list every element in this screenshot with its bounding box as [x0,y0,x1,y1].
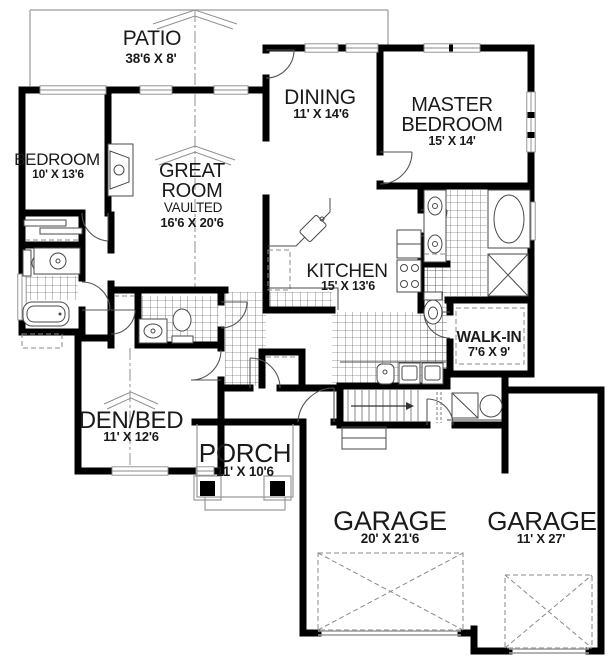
optional-stoop [22,334,62,348]
label-bedroom-dims: 10' X 13'6 [32,167,84,181]
label-patio: PATIO [123,27,181,50]
label-master-bedroom-2: BEDROOM [401,114,502,136]
label-great-room-note: VAULTED [164,200,223,215]
front-door [298,388,334,422]
patio-door [266,50,294,78]
window [214,86,248,94]
garage-doors [318,553,592,653]
den-door [191,350,221,380]
label-dining-dims: 11' X 14'6 [293,106,349,121]
bath-door [82,282,110,310]
fireplace [108,144,133,196]
window [527,92,535,152]
label-great-room-1: GREAT [159,160,225,182]
window [140,86,172,94]
label-walk-in-dims: 7'6 X 9' [468,344,510,359]
bedroom-door [82,213,108,241]
label-great-room-2: ROOM [161,180,222,202]
window [424,44,480,52]
label-master-bedroom-1: MASTER [411,94,493,116]
window [40,86,106,94]
label-patio-dims: 38'6 X 8' [125,51,176,66]
label-great-room-dims: 16'6 X 20'6 [160,215,223,230]
closet-door [111,310,135,334]
label-kitchen-dims: 15' X 13'6 [321,279,375,293]
window [305,44,338,52]
floor-plan-canvas: PATIO 38'6 X 8' DINING 11' X 14'6 MASTER… [0,0,614,664]
stairs [342,390,418,449]
bedroom-closet [24,220,82,240]
floor-plan-drawing: PATIO 38'6 X 8' DINING 11' X 14'6 MASTER… [0,0,614,664]
label-porch-dims: 11' X 10'6 [216,464,274,479]
label-master-bedroom-dims: 15' X 14' [428,134,475,148]
label-garage-side-dims: 11' X 27' [517,531,566,546]
label-den-bed-dims: 11' X 12'6 [103,429,159,444]
master-bedroom-door [380,152,412,184]
window [196,467,214,475]
window [112,467,168,475]
roof-ridge-lines [104,10,237,466]
garage-entry-door [427,399,453,425]
window [346,44,378,52]
label-garage-main-dims: 20' X 21'6 [361,531,420,546]
